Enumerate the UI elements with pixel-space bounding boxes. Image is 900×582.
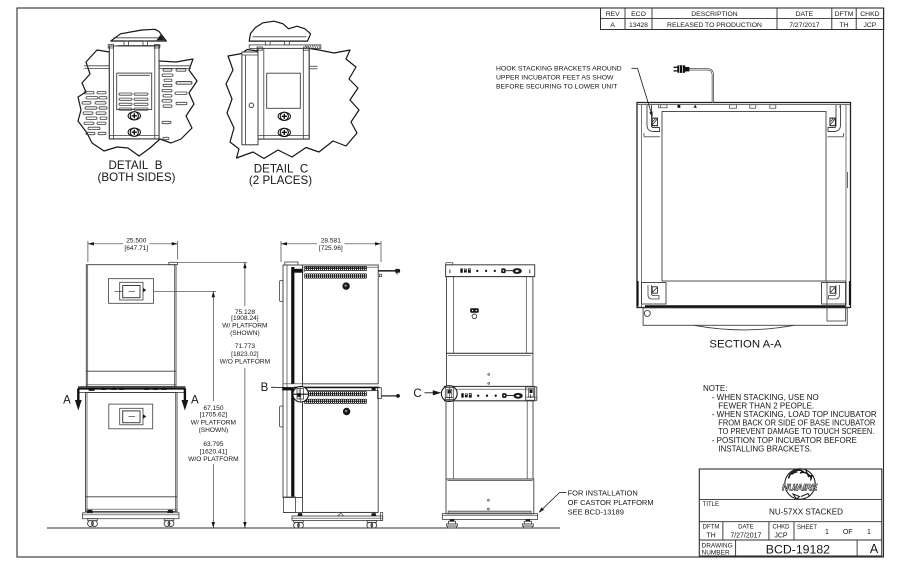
- svg-text:25.500: 25.500: [126, 238, 147, 245]
- svg-text:BCD-19182: BCD-19182: [766, 542, 830, 556]
- svg-text:A: A: [191, 395, 199, 407]
- svg-text:DRAWING: DRAWING: [702, 542, 733, 549]
- svg-text:NU/AIRE: NU/AIRE: [782, 483, 818, 493]
- svg-text:OF: OF: [843, 529, 853, 536]
- svg-text:A: A: [870, 542, 879, 556]
- svg-text:SHEET: SHEET: [797, 525, 817, 531]
- svg-text:A: A: [610, 22, 615, 29]
- svg-text:HOOK STACKING BRACKETS AROUND: HOOK STACKING BRACKETS AROUND: [496, 66, 622, 73]
- svg-text:REV: REV: [606, 11, 620, 18]
- svg-text:NUMBER: NUMBER: [702, 550, 730, 557]
- svg-text:INSTALLING BRACKETS.: INSTALLING BRACKETS.: [718, 444, 812, 453]
- svg-text:28.581: 28.581: [321, 238, 342, 245]
- svg-text:7/27/2017: 7/27/2017: [730, 533, 761, 540]
- svg-text:(BOTH SIDES): (BOTH SIDES): [98, 171, 176, 184]
- svg-text:DATE: DATE: [796, 11, 814, 18]
- svg-text:71.773: 71.773: [235, 343, 256, 350]
- svg-text:63.795: 63.795: [203, 441, 224, 448]
- svg-text:JCP: JCP: [774, 532, 788, 539]
- svg-text:7/27/2017: 7/27/2017: [789, 22, 819, 29]
- svg-text:13428: 13428: [629, 22, 648, 29]
- svg-text:NU-57XX STACKED: NU-57XX STACKED: [769, 508, 843, 517]
- svg-text:C: C: [413, 388, 421, 400]
- svg-text:W/ PLATFORM: W/ PLATFORM: [222, 323, 267, 330]
- svg-text:B: B: [261, 382, 269, 394]
- svg-text:CHKD: CHKD: [860, 11, 879, 18]
- svg-text:(SHOWN): (SHOWN): [230, 330, 260, 337]
- svg-text:(2 PLACES): (2 PLACES): [249, 174, 312, 187]
- svg-text:W/ PLATFORM: W/ PLATFORM: [191, 419, 236, 426]
- svg-text:TH: TH: [706, 532, 715, 539]
- svg-text:[725.96]: [725.96]: [319, 245, 343, 252]
- svg-text:TITLE: TITLE: [703, 502, 719, 508]
- svg-text:ECO: ECO: [631, 11, 646, 18]
- svg-text:[1705.62]: [1705.62]: [200, 412, 228, 419]
- svg-text:CHKD: CHKD: [772, 524, 790, 530]
- svg-text:(SHOWN): (SHOWN): [199, 427, 229, 434]
- svg-text:DATE: DATE: [738, 524, 754, 530]
- svg-text:[1620.41]: [1620.41]: [200, 449, 228, 456]
- svg-text:1: 1: [867, 529, 871, 536]
- svg-text:1: 1: [825, 529, 829, 536]
- svg-text:SECTION A-A: SECTION A-A: [709, 338, 782, 350]
- svg-text:BEFORE SECURING TO LOWER UNIT: BEFORE SECURING TO LOWER UNIT: [496, 83, 617, 90]
- svg-text:RELEASED TO PRODUCTION: RELEASED TO PRODUCTION: [667, 22, 762, 29]
- svg-text:OF CASTOR PLATFORM: OF CASTOR PLATFORM: [568, 498, 654, 507]
- svg-text:[1823.02]: [1823.02]: [231, 351, 259, 358]
- svg-text:FOR INSTALLATION: FOR INSTALLATION: [568, 488, 638, 497]
- svg-text:UPPER INCUBATOR FEET AS SHOW: UPPER INCUBATOR FEET AS SHOW: [496, 75, 614, 82]
- svg-text:W/O PLATFORM: W/O PLATFORM: [220, 359, 270, 366]
- svg-text:DESCRIPTION: DESCRIPTION: [691, 11, 738, 18]
- svg-text:A: A: [63, 395, 71, 407]
- svg-text:TH: TH: [839, 22, 848, 29]
- svg-text:W/O PLATFORM: W/O PLATFORM: [188, 456, 238, 463]
- svg-text:[1908.24]: [1908.24]: [231, 315, 259, 322]
- svg-text:DFTM: DFTM: [703, 524, 720, 530]
- svg-text:JCP: JCP: [863, 22, 876, 29]
- svg-text:[647.71]: [647.71]: [124, 245, 148, 252]
- svg-text:SEE BCD-13189: SEE BCD-13189: [568, 507, 624, 516]
- svg-text:DFTM: DFTM: [835, 11, 854, 18]
